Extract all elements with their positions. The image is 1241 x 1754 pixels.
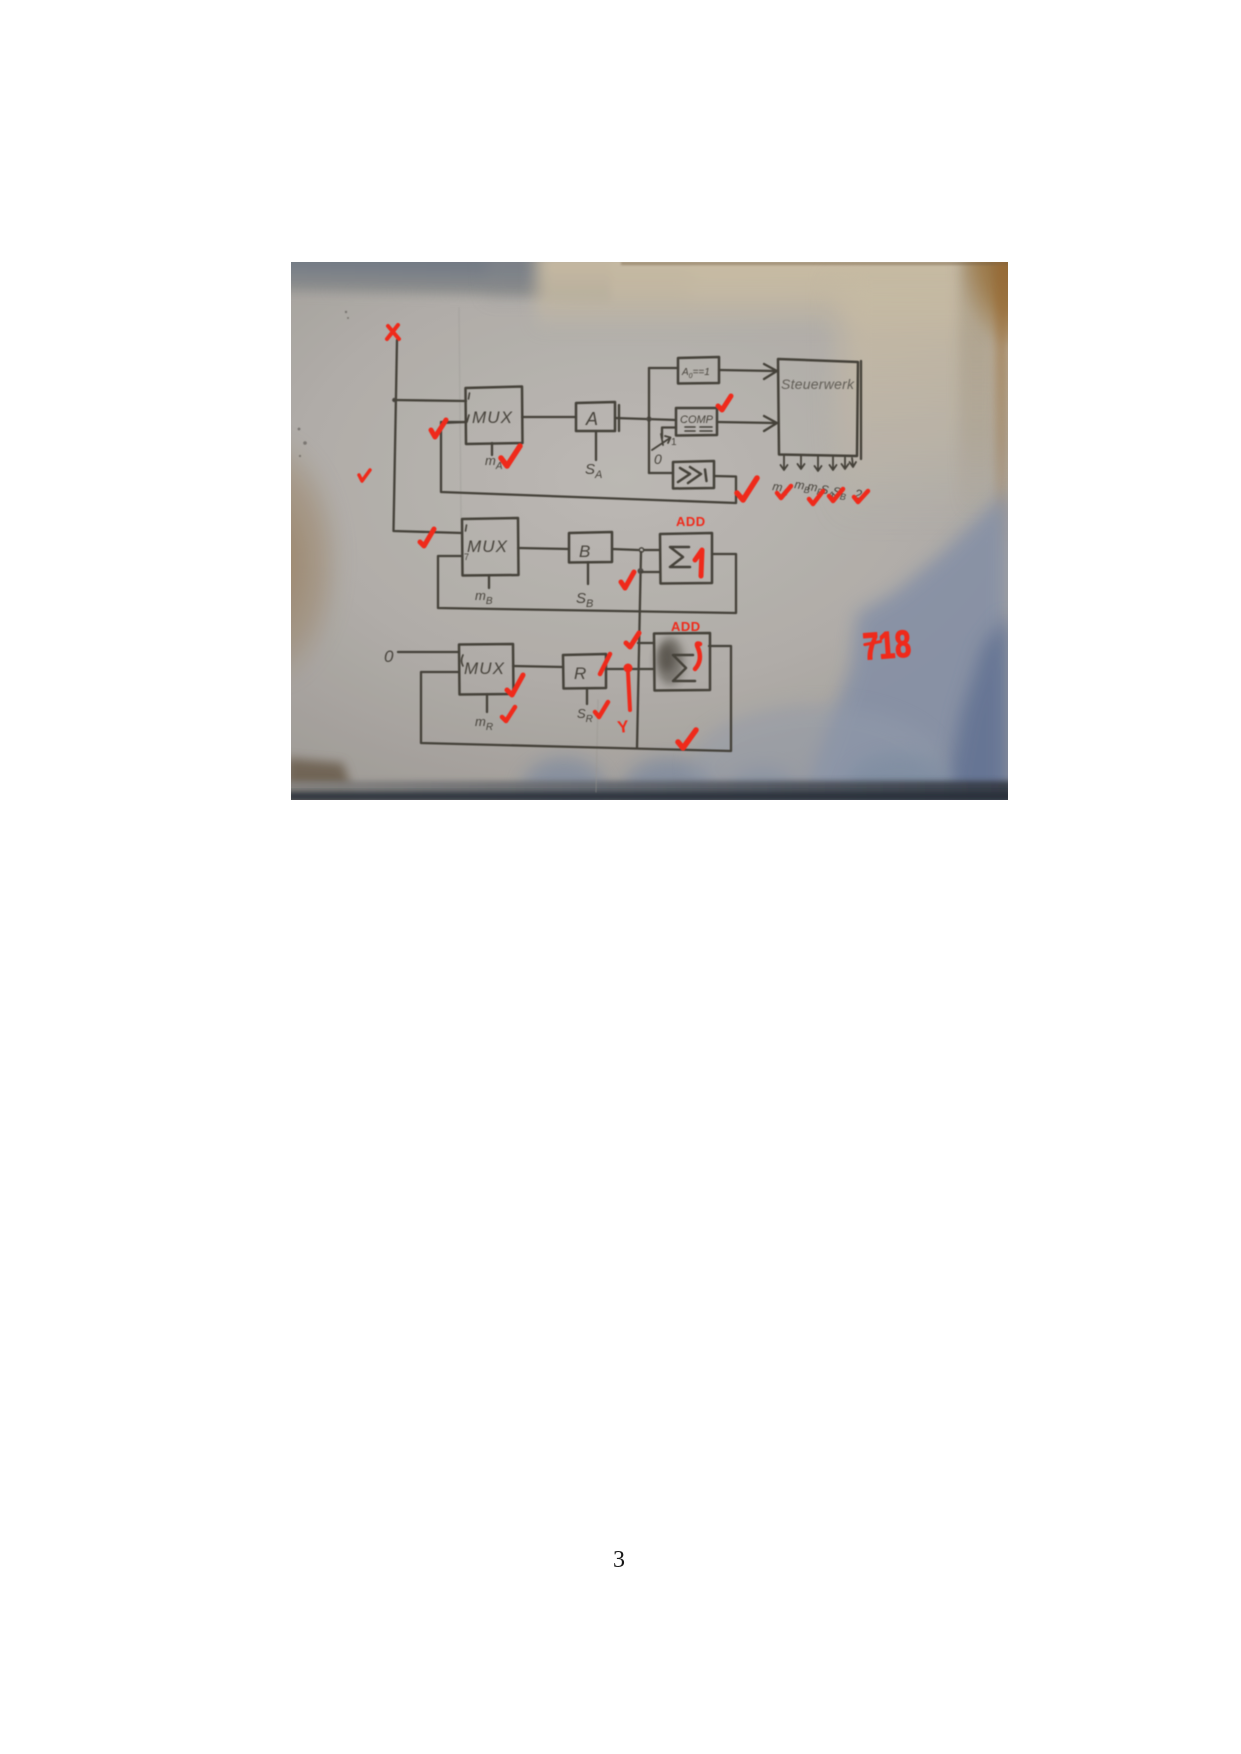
svg-text:B: B	[579, 542, 590, 561]
svg-text:COMP: COMP	[680, 414, 714, 426]
svg-text:A0==1: A0==1	[681, 367, 710, 380]
svg-text:A: A	[585, 409, 598, 429]
svg-text:1: 1	[671, 437, 677, 448]
svg-text:SR: SR	[577, 706, 593, 725]
svg-text:R: R	[574, 664, 586, 683]
svg-text:0: 0	[384, 647, 394, 666]
svg-text:SA: SA	[585, 461, 602, 481]
svg-text:ADD: ADD	[676, 514, 706, 529]
svg-text:mB: mB	[475, 588, 493, 607]
svg-text:Y: Y	[616, 717, 630, 737]
svg-text:Steuerwerk: Steuerwerk	[781, 376, 855, 392]
svg-text:0: 0	[654, 451, 662, 467]
svg-text:MUX: MUX	[467, 537, 508, 556]
svg-text:SB: SB	[576, 590, 593, 610]
svg-text:ADD: ADD	[671, 619, 701, 634]
svg-text:718: 718	[862, 623, 913, 668]
svg-text:MUX: MUX	[464, 659, 505, 678]
svg-text:mR: mR	[475, 714, 493, 733]
svg-text:MUX: MUX	[472, 408, 513, 427]
